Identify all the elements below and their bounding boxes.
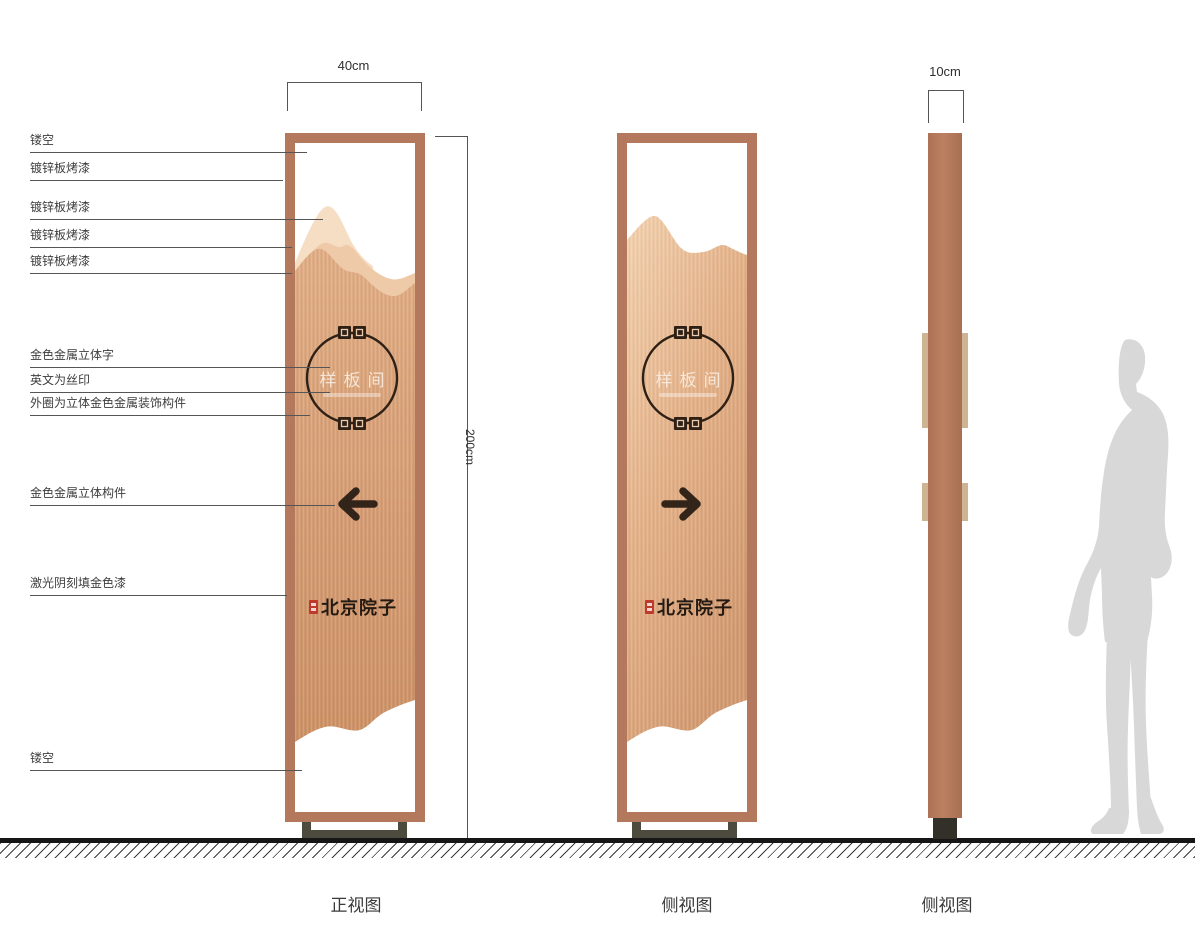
- red-seal-icon: [309, 600, 318, 614]
- caption-side-view-2: 侧视图: [877, 891, 1017, 916]
- english-subtitle-silkscreen: [323, 393, 381, 397]
- front-panel-artwork: [295, 143, 415, 812]
- base-bracket-bar: [302, 830, 407, 838]
- annotation-english-silkscreen: 英文为丝印: [30, 373, 330, 393]
- dimension-side-width: 10cm: [920, 64, 970, 79]
- caption-front-view: 正视图: [286, 891, 426, 916]
- back-view-pillar: [617, 133, 757, 822]
- dimension-line-height: [467, 136, 468, 838]
- dimension-tick-top: [435, 136, 467, 137]
- annotation-label: 镀锌板烤漆: [30, 254, 90, 268]
- annotation-gold-component: 金色金属立体构件: [30, 486, 335, 506]
- annotation-label: 金色金属立体字: [30, 348, 114, 362]
- annotation-label: 外圈为立体金色金属装饰构件: [30, 396, 186, 410]
- side-view-pillar: [928, 133, 962, 818]
- annotation-galvanized-1: 镀锌板烤漆: [30, 161, 283, 181]
- brand-name-text: 北京院子: [321, 594, 397, 620]
- annotation-label: 英文为丝印: [30, 373, 90, 387]
- back-panel-artwork: [627, 143, 747, 812]
- ground-hatch: [0, 843, 1195, 858]
- english-subtitle-silkscreen: [659, 393, 717, 397]
- annotation-laser-engrave: 激光阴刻填金色漆: [30, 576, 287, 596]
- annotation-galvanized-2: 镀锌板烤漆: [30, 200, 323, 220]
- left-arrow-icon: [332, 486, 378, 522]
- annotation-label: 镀锌板烤漆: [30, 200, 90, 214]
- annotation-label: 金色金属立体构件: [30, 486, 126, 500]
- person-silhouette: [1040, 336, 1188, 840]
- red-seal-icon: [645, 600, 654, 614]
- annotation-hollow-top: 镂空: [30, 133, 307, 153]
- right-arrow-icon: [661, 486, 707, 522]
- front-view-pillar: [285, 133, 425, 822]
- brand-logo: 北京院子: [629, 594, 749, 620]
- annotation-hollow-bottom: 镂空: [30, 751, 302, 771]
- side-base-block: [933, 815, 957, 839]
- annotation-label: 镀锌板烤漆: [30, 161, 90, 175]
- base-bracket-bar: [632, 830, 737, 838]
- annotation-label: 镂空: [30, 133, 54, 147]
- dimension-front-width: 40cm: [287, 58, 420, 73]
- brand-logo: 北京院子: [293, 594, 413, 620]
- annotation-label: 镂空: [30, 751, 54, 765]
- annotation-galvanized-4: 镀锌板烤漆: [30, 254, 292, 274]
- annotation-gold-letters: 金色金属立体字: [30, 348, 330, 368]
- room-name-text: 样板间: [633, 366, 743, 391]
- annotation-galvanized-3: 镀锌板烤漆: [30, 228, 292, 248]
- dimension-bracket-10cm: [928, 90, 964, 123]
- annotation-label: 激光阴刻填金色漆: [30, 576, 126, 590]
- dimension-total-height: 200cm: [463, 417, 477, 477]
- panel-brush-texture: [627, 216, 747, 742]
- annotation-outer-ring: 外圈为立体金色金属装饰构件: [30, 396, 310, 416]
- dimension-bracket-40cm: [287, 82, 422, 111]
- design-spec-sheet: 镂空 镀锌板烤漆 镀锌板烤漆 镀锌板烤漆 镀锌板烤漆 金色金属立体字 英文为丝印…: [0, 0, 1195, 927]
- annotation-label: 镀锌板烤漆: [30, 228, 90, 242]
- brand-name-text: 北京院子: [657, 594, 733, 620]
- caption-side-view-1: 侧视图: [617, 891, 757, 916]
